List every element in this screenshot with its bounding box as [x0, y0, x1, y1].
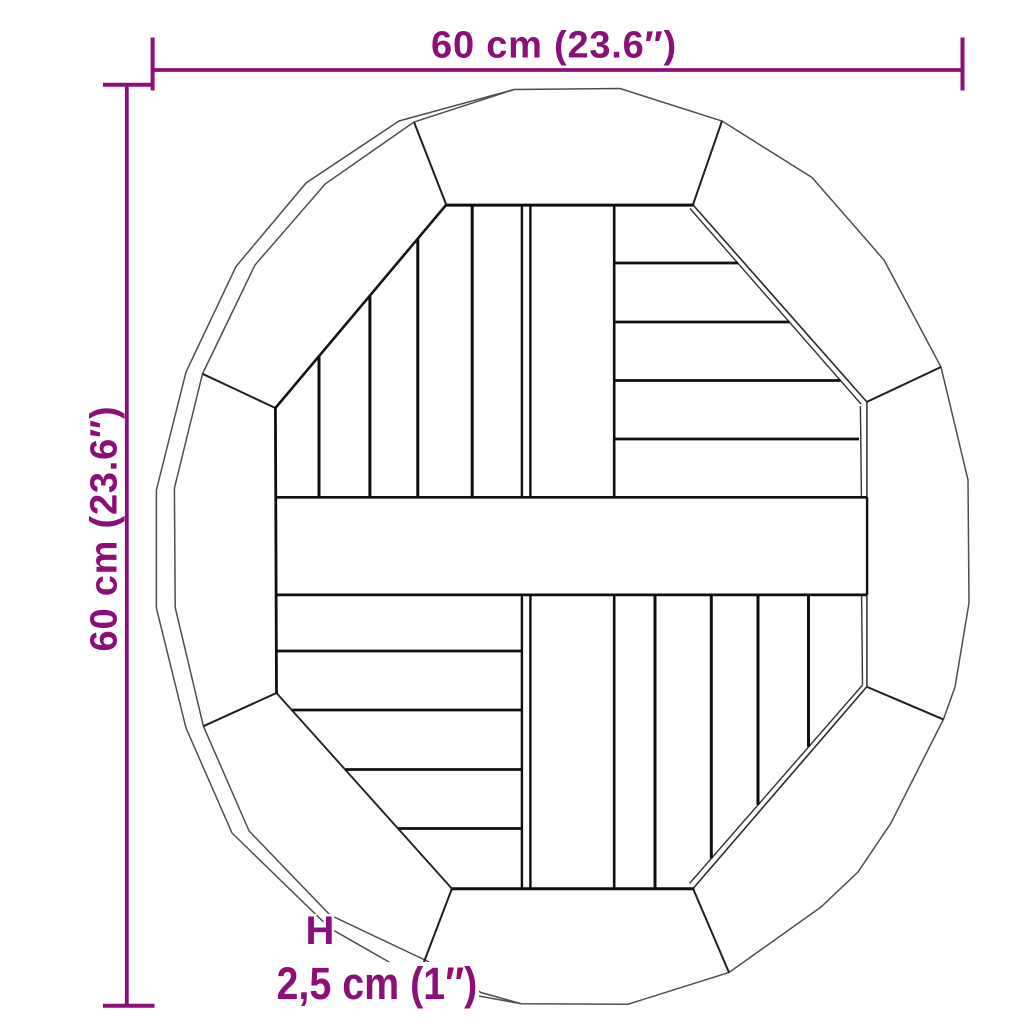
svg-text:60 cm (23.6″): 60 cm (23.6″)	[431, 25, 677, 67]
svg-text:H: H	[305, 909, 334, 953]
svg-text:2,5 cm (1″): 2,5 cm (1″)	[277, 959, 478, 1009]
svg-text:60 cm (23.6″): 60 cm (23.6″)	[84, 406, 126, 652]
